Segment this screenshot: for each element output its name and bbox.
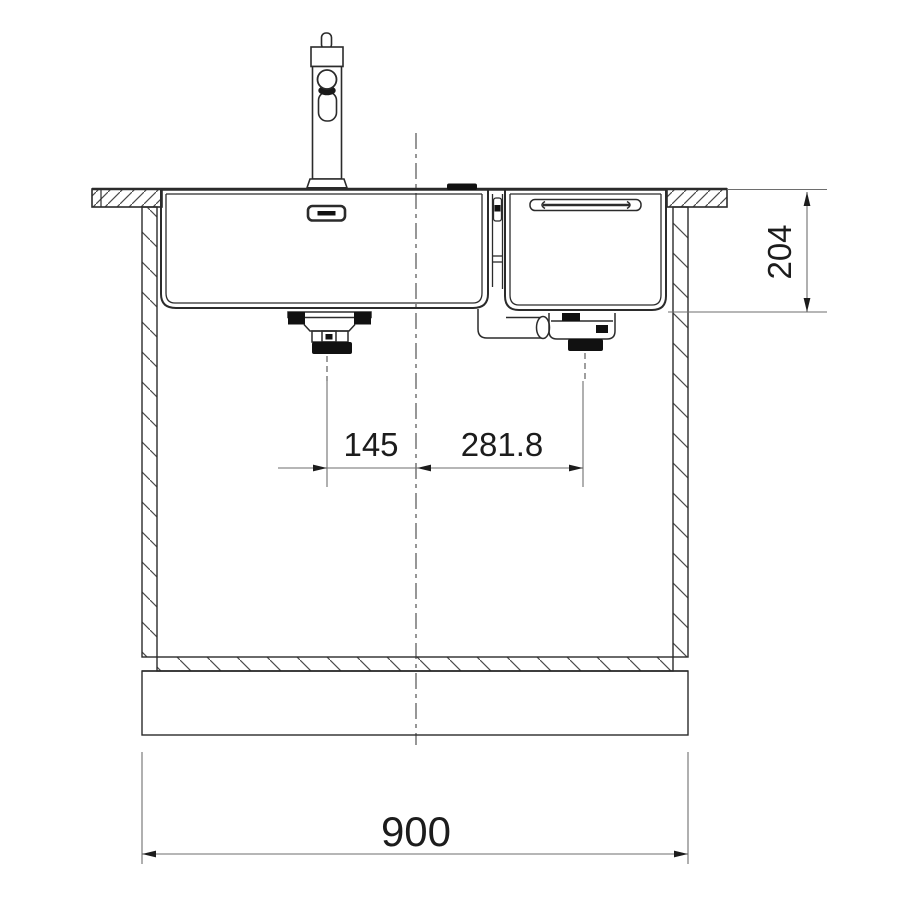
faucet-joint bbox=[318, 70, 337, 89]
arrowhead bbox=[804, 298, 811, 312]
arrowhead bbox=[674, 851, 688, 858]
drawing-canvas: 145 281.8 204 900 bbox=[0, 0, 900, 900]
countertop-right-block bbox=[667, 189, 727, 207]
faucet-spout bbox=[319, 92, 337, 121]
arrowhead bbox=[313, 465, 327, 472]
bowl-divider bbox=[493, 194, 503, 289]
drain-pipe bbox=[478, 309, 550, 339]
arrowhead bbox=[804, 192, 811, 206]
dim-overall-width: 900 bbox=[142, 752, 688, 864]
countertop-left-block bbox=[92, 189, 162, 207]
dim-281-label: 281.8 bbox=[461, 426, 544, 463]
dim-900-label: 900 bbox=[381, 808, 451, 855]
left-bowl-outer bbox=[161, 190, 488, 308]
dim-horizontal-drains: 145 281.8 bbox=[278, 381, 583, 487]
cabinet-plinth bbox=[142, 671, 688, 735]
arrowhead bbox=[417, 465, 431, 472]
dim-145-label: 145 bbox=[343, 426, 398, 463]
dim-bowl-depth: 204 bbox=[668, 190, 827, 313]
cabinet-right-wall bbox=[673, 207, 688, 657]
faucet-base bbox=[307, 179, 347, 188]
left-drain bbox=[288, 312, 371, 381]
arrowhead bbox=[142, 851, 156, 858]
overflow-slot-right bbox=[530, 200, 641, 211]
faucet bbox=[307, 33, 347, 188]
sink-technical-drawing: 145 281.8 204 900 bbox=[0, 0, 900, 900]
right-bowl-outer bbox=[505, 190, 666, 310]
faucet-head bbox=[311, 47, 343, 67]
arrowhead bbox=[569, 465, 583, 472]
sink bbox=[161, 184, 666, 311]
cabinet bbox=[142, 207, 688, 735]
cabinet-left-wall bbox=[142, 207, 157, 657]
cabinet-bottom-panel bbox=[157, 657, 673, 671]
left-bowl-inner bbox=[166, 194, 482, 303]
right-drain bbox=[549, 313, 615, 381]
dim-204-label: 204 bbox=[761, 224, 798, 279]
rim-accessory-cover bbox=[447, 184, 477, 191]
overflow-slot-left bbox=[308, 206, 345, 221]
countertop bbox=[92, 189, 727, 207]
